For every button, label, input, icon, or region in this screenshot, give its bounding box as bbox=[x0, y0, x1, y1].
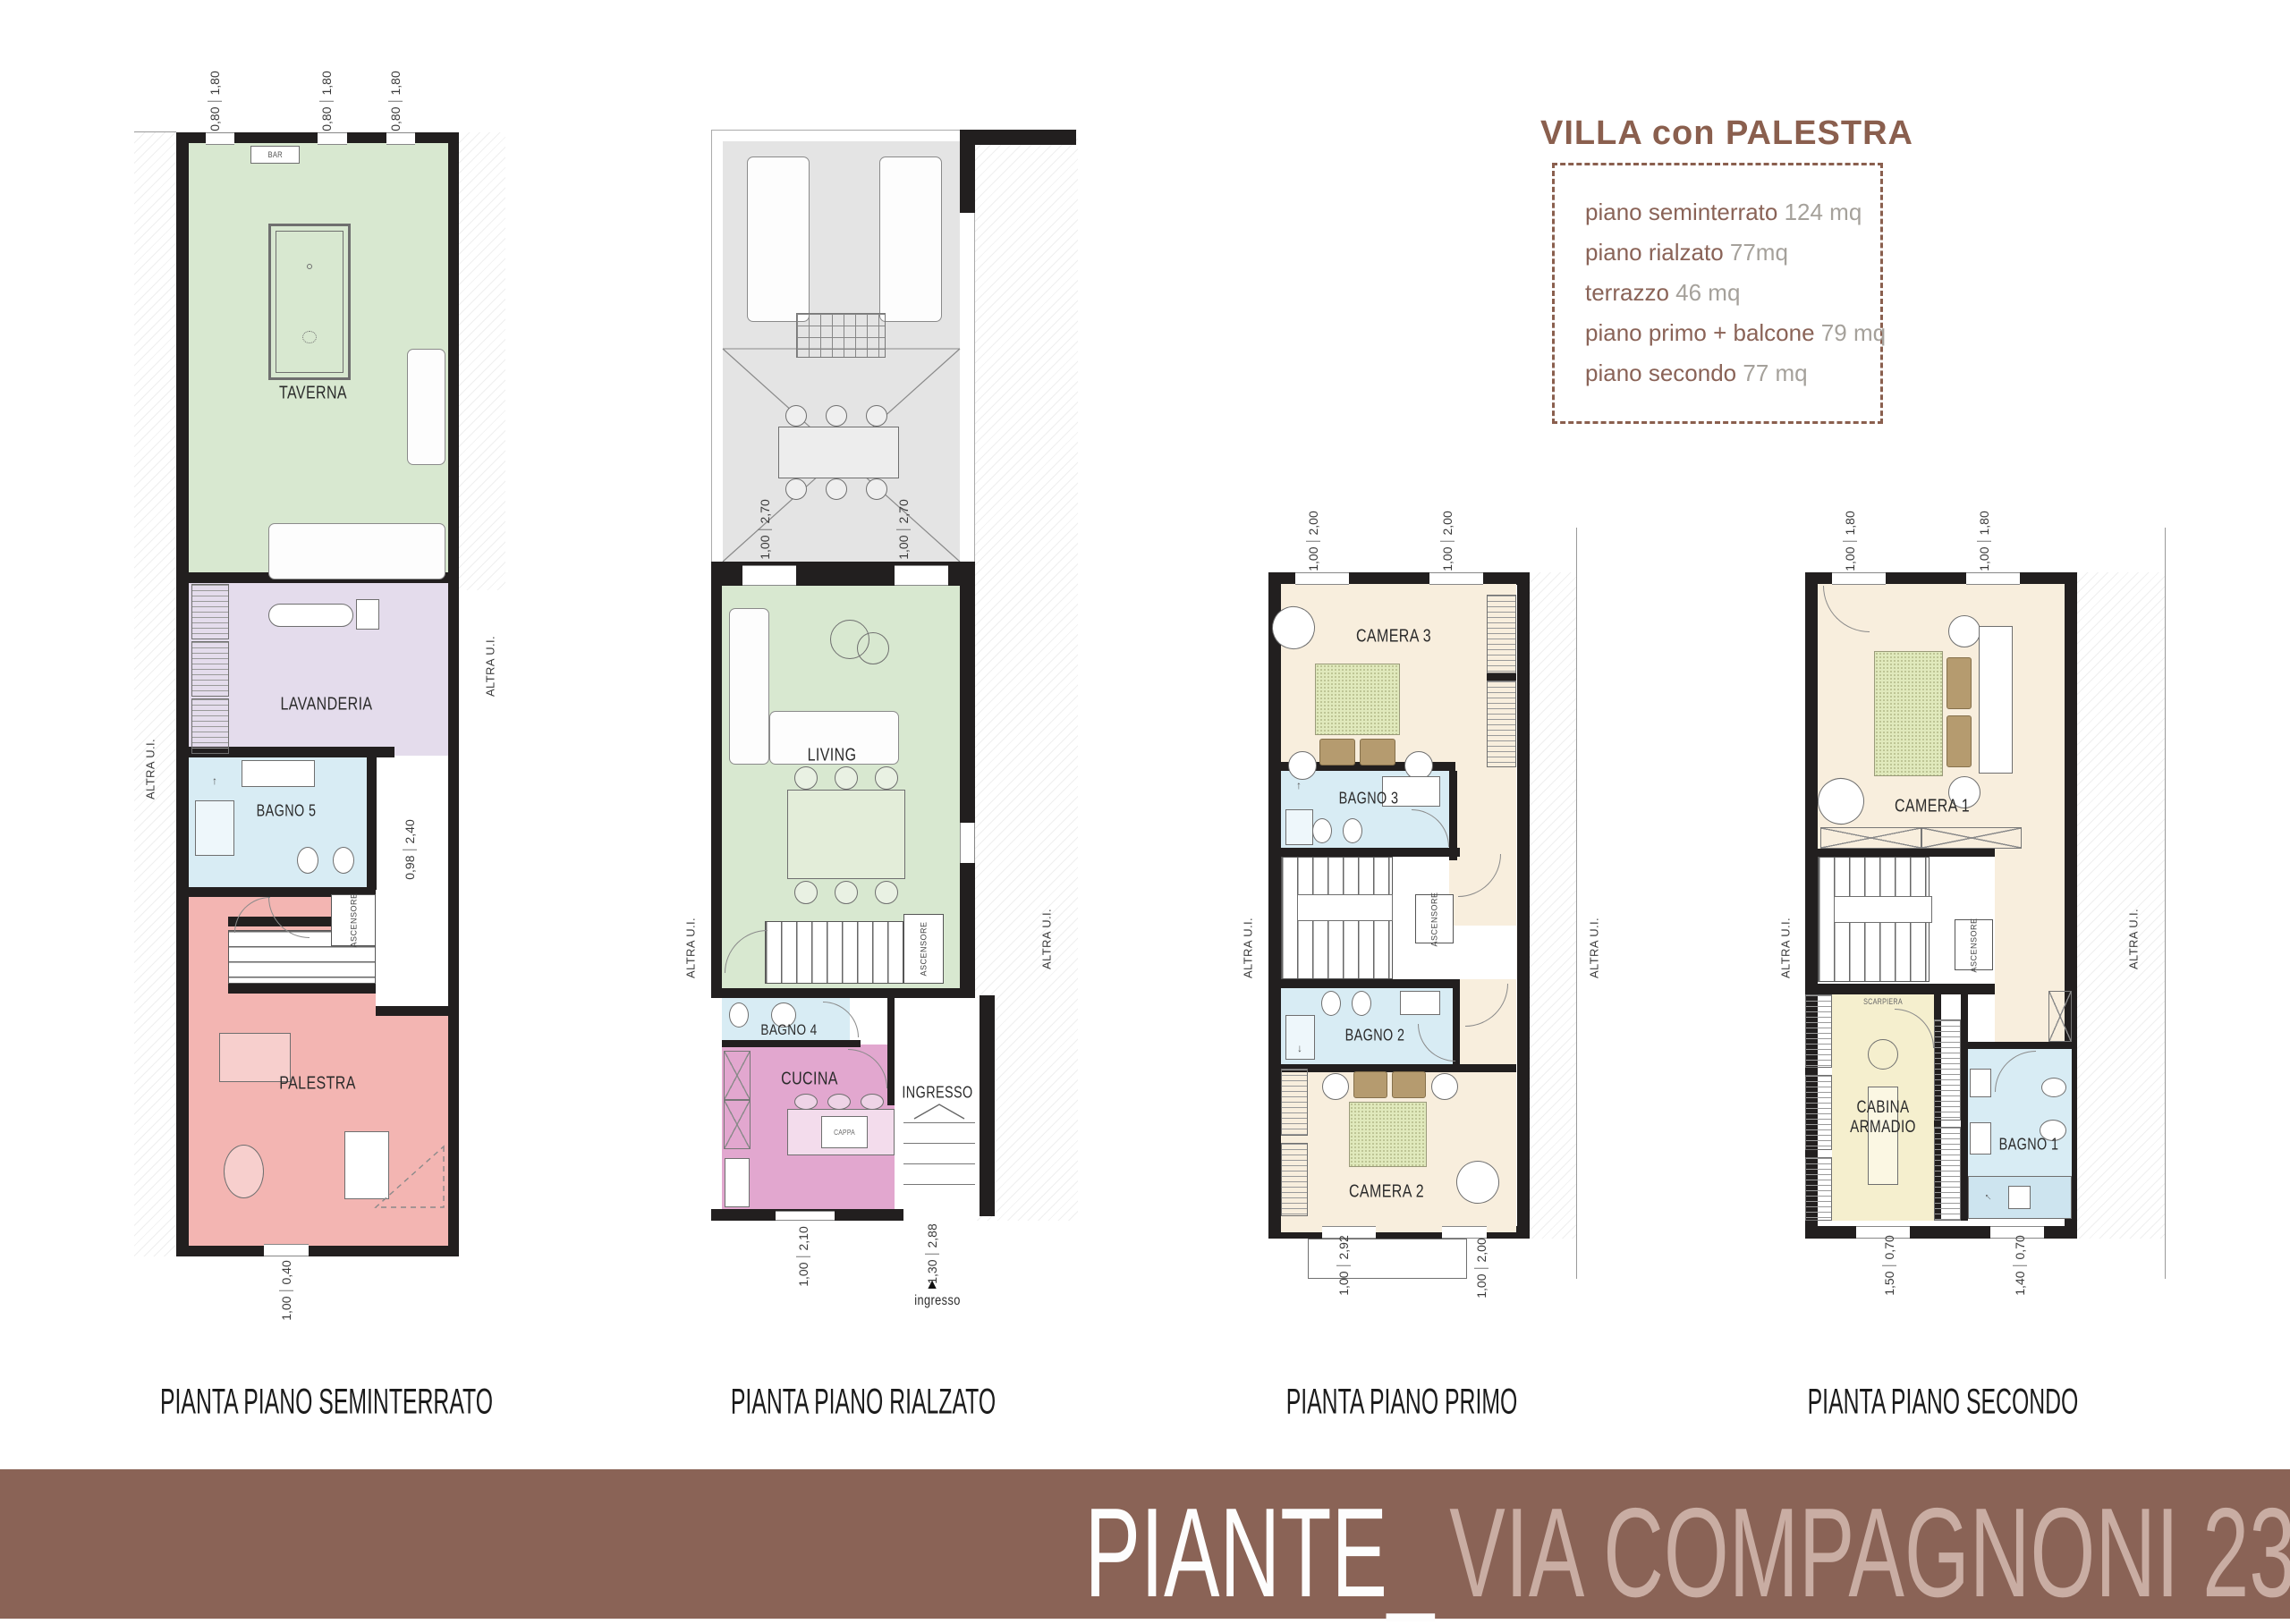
elevator: ASCENSORE bbox=[903, 914, 944, 984]
pergola-grid bbox=[796, 313, 886, 358]
chair bbox=[866, 405, 887, 427]
boundary-line bbox=[134, 131, 176, 132]
chair bbox=[826, 478, 847, 500]
dim-balcony-door: 1,002,92 bbox=[1336, 1235, 1351, 1296]
caption-rialzato: PIANTA PIANO RIALZATO bbox=[731, 1383, 996, 1423]
nightstand bbox=[1948, 615, 1980, 647]
room-label-lavanderia: LAVANDERIA bbox=[281, 695, 373, 715]
room-label-cabina: CABINA ARMADIO bbox=[1840, 1098, 1926, 1138]
gym-bike bbox=[224, 1145, 264, 1198]
shower bbox=[1285, 809, 1313, 845]
dim-terrace-door: 1,002,70 bbox=[896, 499, 911, 560]
room-label-bagno2: BAGNO 2 bbox=[1345, 1027, 1405, 1045]
dim-window: 1,002,00 bbox=[1474, 1238, 1488, 1298]
dim-terrace-door: 1,002,70 bbox=[758, 499, 772, 560]
washbasin bbox=[1400, 991, 1440, 1015]
ironing-board bbox=[268, 604, 353, 627]
terrace-sofa bbox=[747, 156, 810, 322]
site-hatch bbox=[2077, 572, 2165, 1239]
pouf bbox=[1868, 1039, 1898, 1070]
elevator: ASCENSORE bbox=[1955, 919, 1993, 970]
chair bbox=[835, 881, 858, 904]
dim-window: 1,002,00 bbox=[1440, 511, 1455, 571]
dim-window: 1,002,00 bbox=[1306, 511, 1320, 571]
wardrobe-low bbox=[1921, 827, 2022, 849]
entry-arrow-icon: ▲ bbox=[925, 1277, 939, 1293]
shower-arrow-icon: ↑ bbox=[1296, 779, 1302, 791]
dining-table bbox=[787, 790, 905, 879]
toilet bbox=[1312, 818, 1332, 843]
dim-door: 1,002,10 bbox=[796, 1226, 810, 1287]
entry-label: ingresso bbox=[914, 1293, 961, 1309]
closet bbox=[191, 584, 229, 639]
closet bbox=[1805, 1075, 1832, 1150]
window bbox=[206, 132, 234, 145]
shower-arrow-icon: ↑ bbox=[212, 774, 217, 787]
caption-seminterrato: PIANTA PIANO SEMINTERRATO bbox=[160, 1383, 493, 1423]
boundary-line bbox=[2165, 528, 2166, 1279]
window bbox=[1966, 572, 2020, 585]
toilet bbox=[297, 847, 318, 874]
stair-rail bbox=[1297, 894, 1393, 921]
plan-seminterrato: BAR TAVERNA LAVANDERIA BAGNO 5 ↑ ASCENSO… bbox=[134, 85, 519, 1319]
cappa-label: CAPPA bbox=[834, 1129, 855, 1137]
site-hatch bbox=[1530, 572, 1576, 1239]
room-label-bagno1: BAGNO 1 bbox=[1999, 1136, 2059, 1155]
stool bbox=[794, 1094, 818, 1110]
dim-window: 0,801,80 bbox=[208, 71, 222, 131]
chair bbox=[794, 881, 818, 904]
pillow bbox=[1319, 739, 1355, 765]
banner-subtitle: VIA COMPAGNONI 23 bbox=[1449, 1482, 2290, 1624]
plan-rialzato: 1,002,70 1,002,70 LIVING ASCENSORE BAGNO… bbox=[689, 85, 1091, 1319]
dim-window: 0,801,80 bbox=[388, 71, 403, 131]
window bbox=[386, 132, 415, 145]
caption-secondo: PIANTA PIANO SECONDO bbox=[1808, 1383, 2079, 1423]
pillow bbox=[1946, 657, 1972, 709]
caption-primo: PIANTA PIANO PRIMO bbox=[1286, 1383, 1518, 1423]
closet bbox=[191, 641, 229, 697]
bathtub bbox=[242, 760, 315, 787]
site-hatch bbox=[134, 132, 176, 1256]
chair bbox=[794, 766, 818, 790]
bidet bbox=[1352, 991, 1371, 1016]
sofa bbox=[729, 608, 769, 765]
toilet bbox=[729, 1002, 749, 1028]
shower-arrow-icon: ↓ bbox=[1297, 1042, 1302, 1054]
shower-tray bbox=[2008, 1186, 2031, 1209]
closet bbox=[1281, 1143, 1308, 1216]
room-label-palestra: PALESTRA bbox=[279, 1074, 356, 1095]
adjacent-unit-label: ALTRA U.I. bbox=[684, 918, 698, 978]
shaft bbox=[2048, 991, 2072, 1042]
room-label-cucina: CUCINA bbox=[781, 1070, 838, 1090]
adjacent-unit-label: ALTRA U.I. bbox=[2127, 909, 2141, 969]
chair bbox=[875, 766, 898, 790]
desk bbox=[1979, 626, 2013, 774]
entry-arrow bbox=[912, 1103, 966, 1121]
pillow bbox=[1946, 715, 1972, 767]
elevator-label: ASCENSORE bbox=[1970, 918, 1979, 972]
dim-door: 1,000,40 bbox=[279, 1260, 293, 1321]
dining-table bbox=[778, 427, 899, 478]
dim-passage: 0,982,40 bbox=[403, 819, 417, 880]
chair bbox=[785, 405, 807, 427]
sofa bbox=[407, 349, 445, 465]
bed bbox=[1315, 664, 1400, 735]
window bbox=[1832, 572, 1886, 585]
pool-ball bbox=[307, 264, 312, 269]
scarpiera-label: SCARPIERA bbox=[1863, 997, 1903, 1006]
corridor bbox=[376, 756, 448, 1015]
closet bbox=[1805, 1157, 1832, 1221]
bar-label: BAR bbox=[267, 150, 282, 159]
dim-window: 1,500,70 bbox=[1882, 1235, 1896, 1296]
window bbox=[1295, 572, 1349, 585]
pillow bbox=[1360, 739, 1395, 765]
nightstand bbox=[1322, 1073, 1349, 1100]
closet bbox=[1487, 595, 1516, 673]
closet bbox=[1805, 994, 1832, 1068]
stair-rail bbox=[1834, 896, 1932, 923]
site-hatch bbox=[459, 132, 505, 590]
elevator: ASCENSORE bbox=[1415, 894, 1454, 943]
washbasin bbox=[1970, 1122, 1991, 1155]
balcony bbox=[1308, 1239, 1467, 1279]
toilet bbox=[1321, 991, 1341, 1016]
closet bbox=[1934, 1127, 1961, 1221]
chair bbox=[875, 881, 898, 904]
door-arc bbox=[823, 1002, 859, 1037]
room-label-bagno3: BAGNO 3 bbox=[1339, 790, 1399, 808]
banner-title: PIANTE_ bbox=[1084, 1482, 1434, 1624]
bed bbox=[1874, 651, 1943, 776]
room-label-ingresso: INGRESSO bbox=[902, 1084, 972, 1103]
dim-window: 1,001,80 bbox=[1977, 511, 1991, 571]
window bbox=[960, 823, 975, 863]
villa-title: VILLA con PALESTRA bbox=[1540, 114, 1913, 153]
adjacent-unit-label: ALTRA U.I. bbox=[1779, 918, 1793, 978]
window bbox=[895, 565, 948, 586]
chair bbox=[835, 766, 858, 790]
room-label-taverna: TAVERNA bbox=[279, 384, 347, 404]
stool bbox=[861, 1094, 884, 1110]
info-line: terrazzo 46 mq bbox=[1585, 279, 1740, 307]
room-label-living: LIVING bbox=[808, 746, 857, 766]
cooktop: CAPPA bbox=[821, 1116, 868, 1148]
room-label-camera3: CAMERA 3 bbox=[1356, 627, 1431, 647]
entry-steps bbox=[903, 1122, 975, 1185]
elevator-label: ASCENSORE bbox=[1430, 892, 1439, 946]
plan-secondo: CAMERA 1 ASCENSORE SCARPIERA CABINA ARMA… bbox=[1771, 501, 2192, 1315]
elevator-label: ASCENSORE bbox=[920, 921, 929, 976]
dim-window: 0,801,80 bbox=[319, 71, 334, 131]
closet bbox=[1281, 1069, 1308, 1136]
bidet bbox=[1343, 818, 1362, 843]
bed bbox=[1349, 1102, 1427, 1167]
door-opening bbox=[264, 1244, 309, 1256]
dim-window: 1,400,70 bbox=[2013, 1235, 2027, 1296]
nightstand bbox=[1288, 751, 1317, 780]
banner-text: PIANTE_VIA COMPAGNONI 23 bbox=[1084, 1490, 2290, 1617]
info-line: piano secondo 77 mq bbox=[1585, 359, 1808, 387]
fridge bbox=[725, 1158, 750, 1207]
side-table bbox=[857, 632, 889, 664]
kitchen-cabinet bbox=[724, 1051, 751, 1100]
staircase bbox=[765, 921, 903, 984]
pool-rack bbox=[302, 331, 317, 343]
info-line: piano seminterrato 124 mq bbox=[1585, 199, 1862, 226]
room-label-bagno5: BAGNO 5 bbox=[257, 802, 317, 821]
dim-window: 1,001,80 bbox=[1843, 511, 1857, 571]
closet bbox=[1934, 1019, 1961, 1121]
window bbox=[742, 565, 796, 586]
chair bbox=[826, 405, 847, 427]
adjacent-unit-label: ALTRA U.I. bbox=[484, 636, 497, 697]
boundary-line bbox=[1576, 528, 1577, 1279]
wardrobe-low bbox=[1820, 827, 1921, 849]
closet bbox=[1487, 681, 1516, 767]
pillow bbox=[1392, 1071, 1426, 1098]
kitchen-cabinet bbox=[724, 1100, 751, 1149]
window bbox=[318, 132, 347, 145]
closet bbox=[191, 698, 229, 754]
nightstand bbox=[1431, 1073, 1458, 1100]
bar-counter: BAR bbox=[250, 146, 300, 164]
room-label-camera1: CAMERA 1 bbox=[1895, 797, 1970, 817]
shower bbox=[195, 800, 234, 856]
window bbox=[776, 1211, 835, 1221]
laundry-machine bbox=[356, 599, 379, 630]
pool-table-inner bbox=[276, 231, 343, 373]
bidet bbox=[2041, 1078, 2066, 1097]
info-line: piano primo + balcone 79 mq bbox=[1585, 319, 1886, 347]
elevator-label: ASCENSORE bbox=[349, 892, 358, 947]
chair bbox=[785, 478, 807, 500]
adjacent-unit-label: ALTRA U.I. bbox=[144, 739, 157, 799]
adjacent-unit-label: ALTRA U.I. bbox=[1040, 909, 1054, 969]
washbasin bbox=[1970, 1069, 1991, 1097]
adjacent-unit-label: ALTRA U.I. bbox=[1242, 918, 1255, 978]
adjacent-unit-label: ALTRA U.I. bbox=[1588, 918, 1601, 978]
room-label-bagno4: BAGNO 4 bbox=[760, 1021, 817, 1039]
elevator: ASCENSORE bbox=[331, 894, 376, 946]
gym-mat-dashed bbox=[374, 1145, 445, 1209]
info-line: piano rialzato 77mq bbox=[1585, 239, 1788, 266]
dim-entry: 1,302,88 bbox=[925, 1223, 939, 1284]
window bbox=[1429, 572, 1483, 585]
sofa bbox=[268, 523, 445, 579]
stool bbox=[827, 1094, 851, 1110]
plan-primo: CAMERA 3 ↑ BAGNO 3 ASCENSORE ↓ BAGNO 2 C… bbox=[1234, 501, 1610, 1315]
terrace-sofa bbox=[879, 156, 942, 322]
chair bbox=[866, 478, 887, 500]
bottom-banner: PIANTE_VIA COMPAGNONI 23 bbox=[0, 1469, 2290, 1619]
room-label-camera2: CAMERA 2 bbox=[1349, 1182, 1424, 1203]
bidet bbox=[333, 847, 354, 874]
pillow bbox=[1353, 1071, 1387, 1098]
